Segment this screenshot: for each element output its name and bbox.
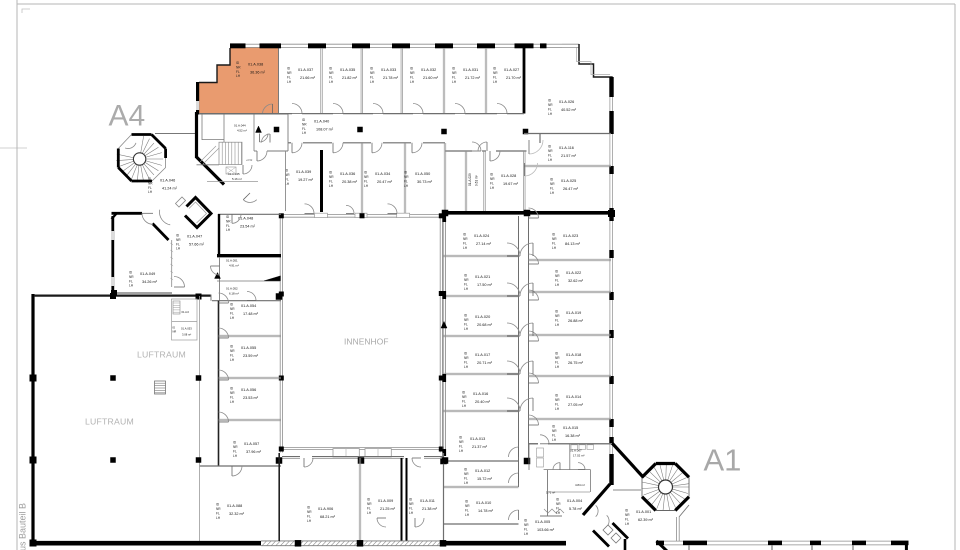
svg-text:FL: FL <box>302 127 306 131</box>
svg-text:LH: LH <box>367 511 372 515</box>
svg-text:NR: NR <box>364 175 369 179</box>
svg-text:LH: LH <box>555 283 560 287</box>
svg-text:21.72 m²: 21.72 m² <box>465 76 481 80</box>
svg-text:01.A.025: 01.A.025 <box>561 179 576 183</box>
svg-text:01.A.009: 01.A.009 <box>378 499 393 503</box>
svg-text:21.82 m²: 21.82 m² <box>342 76 358 80</box>
svg-text:LH: LH <box>556 511 561 515</box>
svg-text:20.38 m²: 20.38 m² <box>342 180 358 184</box>
svg-text:01.A.001: 01.A.001 <box>636 510 651 514</box>
svg-text:NR: NR <box>329 71 334 75</box>
svg-text:NR: NR <box>524 523 529 527</box>
svg-text:103.66 m²: 103.66 m² <box>537 528 555 532</box>
svg-text:FL: FL <box>236 70 240 74</box>
svg-text:FL: FL <box>555 360 559 364</box>
svg-text:LUFTRAUM: LUFTRAUM <box>137 350 186 360</box>
svg-text:FL: FL <box>464 360 468 364</box>
svg-text:01.A.057: 01.A.057 <box>244 442 259 446</box>
svg-text:FL: FL <box>233 449 237 453</box>
svg-text:40.52 m²: 40.52 m² <box>561 108 577 112</box>
svg-text:01.A.012: 01.A.012 <box>475 469 490 473</box>
svg-text:14.78 m²: 14.78 m² <box>478 509 494 513</box>
svg-text:17.50 m²: 17.50 m² <box>477 283 493 287</box>
svg-text:20.47 m²: 20.47 m² <box>377 180 393 184</box>
svg-text:NR: NR <box>367 502 372 506</box>
svg-text:INNENHOF: INNENHOF <box>344 337 389 347</box>
svg-text:01.A.020: 01.A.020 <box>475 315 490 319</box>
svg-text:LH: LH <box>230 400 235 404</box>
svg-text:NR: NR <box>307 510 312 514</box>
svg-text:FL: FL <box>552 433 556 437</box>
svg-text:4.91 m²: 4.91 m² <box>229 264 239 268</box>
svg-text:NR: NR <box>236 65 241 69</box>
svg-text:01.A.067: 01.A.067 <box>570 449 582 453</box>
svg-text:NR: NR <box>464 278 469 282</box>
svg-text:NR: NR <box>548 149 553 153</box>
svg-text:FL: FL <box>555 402 559 406</box>
svg-text:NR: NR <box>459 440 464 444</box>
svg-text:16.38 m²: 16.38 m² <box>565 434 581 438</box>
svg-text:NR: NR <box>230 391 235 395</box>
svg-text:01.A.050: 01.A.050 <box>415 172 430 176</box>
svg-text:20.71 m²: 20.71 m² <box>477 361 493 365</box>
svg-text:LH: LH <box>552 438 557 442</box>
svg-text:NR: NR <box>410 71 415 75</box>
svg-text:21.70 m²: 21.70 m² <box>506 76 522 80</box>
svg-text:37.96 m²: 37.96 m² <box>246 450 262 454</box>
svg-text:15.72 m²: 15.72 m² <box>477 477 493 481</box>
svg-text:LH: LH <box>493 80 498 84</box>
svg-text:LH: LH <box>464 327 469 331</box>
svg-text:NR: NR <box>230 349 235 353</box>
svg-text:LH: LH <box>236 74 241 78</box>
svg-text:01.A.021: 01.A.021 <box>475 275 490 279</box>
svg-text:FL: FL <box>452 75 456 79</box>
svg-text:21.57 m²: 21.57 m² <box>561 154 577 158</box>
svg-text:LH: LH <box>548 112 553 116</box>
svg-text:4.84 m²: 4.84 m² <box>575 483 585 487</box>
svg-text:5.71 m²: 5.71 m² <box>546 491 555 495</box>
svg-text:23.53 m²: 23.53 m² <box>243 396 259 400</box>
svg-text:ID: ID <box>173 326 176 330</box>
svg-text:01.A.004: 01.A.004 <box>567 499 582 503</box>
svg-text:aus Bauteil B: aus Bauteil B <box>18 503 28 550</box>
svg-text:01.A.029: 01.A.029 <box>468 173 472 186</box>
svg-text:01.A.906: 01.A.906 <box>318 507 333 511</box>
svg-text:01.A.055: 01.A.055 <box>241 346 256 350</box>
svg-text:01.A.005: 01.A.005 <box>535 520 550 524</box>
svg-text:FL: FL <box>230 395 234 399</box>
svg-text:01.A.036: 01.A.036 <box>340 172 355 176</box>
svg-text:LH: LH <box>552 246 557 250</box>
svg-text:LH: LH <box>463 246 468 250</box>
svg-text:FL: FL <box>524 527 528 531</box>
svg-text:NR: NR <box>216 507 221 511</box>
svg-text:LH: LH <box>216 516 221 520</box>
svg-text:01.A.054: 01.A.054 <box>241 304 256 308</box>
svg-text:LH: LH <box>452 80 457 84</box>
svg-text:FL: FL <box>462 399 466 403</box>
svg-text:NR: NR <box>230 307 235 311</box>
svg-text:FL: FL <box>230 353 234 357</box>
svg-text:A4: A4 <box>109 100 146 133</box>
svg-text:NR: NR <box>465 504 470 508</box>
svg-text:LH: LH <box>464 365 469 369</box>
svg-text:LH: LH <box>226 228 231 232</box>
svg-text:NR: NR <box>493 71 498 75</box>
svg-text:32.62 m²: 32.62 m² <box>568 279 584 283</box>
svg-text:LH: LH <box>370 80 375 84</box>
svg-text:LH: LH <box>524 532 529 536</box>
svg-text:FL: FL <box>463 241 467 245</box>
svg-text:NR: NR <box>173 330 177 334</box>
svg-text:01.A.028: 01.A.028 <box>501 174 516 178</box>
svg-text:NR: NR <box>550 182 555 186</box>
svg-text:01.A.024: 01.A.024 <box>474 234 489 238</box>
svg-text:23.54 m²: 23.54 m² <box>240 225 256 229</box>
svg-text:NR: NR <box>555 314 560 318</box>
svg-text:FL: FL <box>176 242 180 246</box>
svg-text:NR: NR <box>548 103 553 107</box>
svg-text:LH: LH <box>462 404 467 408</box>
svg-text:01.A.013: 01.A.013 <box>470 437 485 441</box>
svg-text:NR: NR <box>404 175 409 179</box>
svg-text:LH: LH <box>550 191 555 195</box>
svg-text:LH: LH <box>490 186 495 190</box>
svg-text:108.07 m²: 108.07 m² <box>316 128 334 132</box>
svg-text:21.25 m²: 21.25 m² <box>380 507 396 511</box>
svg-text:NR: NR <box>625 513 630 517</box>
svg-text:NR: NR <box>129 275 134 279</box>
svg-text:LH: LH <box>302 131 307 135</box>
svg-text:FL: FL <box>216 511 220 515</box>
svg-text:84.13 m²: 84.13 m² <box>565 242 581 246</box>
svg-text:NR: NR <box>464 356 469 360</box>
svg-text:01.A.039: 01.A.039 <box>296 170 311 174</box>
svg-text:LH: LH <box>307 519 312 523</box>
svg-text:FL: FL <box>404 179 408 183</box>
svg-text:LH: LH <box>287 80 292 84</box>
svg-text:NR: NR <box>329 175 334 179</box>
svg-text:01.A.010: 01.A.010 <box>476 501 491 505</box>
svg-text:A1: A1 <box>704 443 742 478</box>
svg-text:NR: NR <box>148 181 153 185</box>
svg-text:LH: LH <box>555 407 560 411</box>
svg-text:01.A.088: 01.A.088 <box>227 504 242 508</box>
svg-text:NR: NR <box>556 502 561 506</box>
svg-text:NR: NR <box>555 274 560 278</box>
svg-text:21.66 m²: 21.66 m² <box>300 76 316 80</box>
svg-text:FL: FL <box>307 514 311 518</box>
svg-text:FL: FL <box>548 153 552 157</box>
svg-text:LH: LH <box>464 287 469 291</box>
svg-text:34.26 m²: 34.26 m² <box>142 280 158 284</box>
svg-text:NR: NR <box>409 502 414 506</box>
svg-text:19.27 m²: 19.27 m² <box>298 178 314 182</box>
svg-text:FL: FL <box>459 444 463 448</box>
svg-text:LH: LH <box>625 522 630 526</box>
svg-text:01.A.033: 01.A.033 <box>381 68 396 72</box>
svg-text:FL: FL <box>464 322 468 326</box>
svg-text:01.A.0: 01.A.0 <box>182 310 190 314</box>
svg-text:LH: LH <box>555 365 560 369</box>
svg-text:30.73 m²: 30.73 m² <box>417 180 433 184</box>
svg-text:FL: FL <box>129 279 133 283</box>
svg-text:NR: NR <box>287 71 292 75</box>
svg-text:NR: NR <box>552 237 557 241</box>
svg-text:FL: FL <box>490 181 494 185</box>
svg-text:01.A.038: 01.A.038 <box>248 63 263 67</box>
svg-text:21.38 m²: 21.38 m² <box>422 507 438 511</box>
svg-text:FL: FL <box>230 311 234 315</box>
svg-text:LH: LH <box>410 80 415 84</box>
svg-text:21.60 m²: 21.60 m² <box>423 76 439 80</box>
svg-text:LH: LH <box>176 247 181 251</box>
svg-text:FL: FL <box>329 179 333 183</box>
svg-text:NR: NR <box>555 398 560 402</box>
svg-text:01.A.056: 01.A.056 <box>241 388 256 392</box>
svg-text:21.37 m²: 21.37 m² <box>472 445 488 449</box>
svg-text:NR: NR <box>370 71 375 75</box>
svg-text:FL: FL <box>148 186 152 190</box>
svg-text:01.A.047: 01.A.047 <box>187 235 202 239</box>
svg-text:01.A.032: 01.A.032 <box>421 68 436 72</box>
svg-text:LH: LH <box>459 449 464 453</box>
svg-text:FL: FL <box>464 476 468 480</box>
svg-text:FL: FL <box>226 224 230 228</box>
svg-text:01.A.049: 01.A.049 <box>140 272 155 276</box>
svg-text:FL: FL <box>465 508 469 512</box>
svg-text:17.48 m²: 17.48 m² <box>243 312 259 316</box>
svg-text:01.A.026: 01.A.026 <box>559 100 574 104</box>
svg-text:01.A.053: 01.A.053 <box>181 327 192 331</box>
svg-text:NR: NR <box>462 395 467 399</box>
svg-text:LH: LH <box>548 158 553 162</box>
svg-text:LH: LH <box>230 316 235 320</box>
svg-text:LH: LH <box>404 184 409 188</box>
svg-text:21.78 m²: 21.78 m² <box>383 76 399 80</box>
svg-text:LH: LH <box>329 80 334 84</box>
svg-text:LH: LH <box>129 284 134 288</box>
svg-text:01.A.016: 01.A.016 <box>473 392 488 396</box>
svg-text:6.18 m²: 6.18 m² <box>229 292 239 296</box>
svg-text:FL: FL <box>287 75 291 79</box>
svg-text:27.14 m²: 27.14 m² <box>476 242 492 246</box>
svg-text:LUFTRAUM: LUFTRAUM <box>85 417 134 427</box>
svg-text:01.A.044: 01.A.044 <box>234 124 246 128</box>
svg-text:LH: LH <box>148 190 153 194</box>
svg-text:LH: LH <box>233 454 238 458</box>
svg-text:20.68 m²: 20.68 m² <box>477 323 493 327</box>
svg-text:NR: NR <box>464 318 469 322</box>
svg-text:26.47 m²: 26.47 m² <box>563 187 579 191</box>
svg-text:01.A.040: 01.A.040 <box>314 120 329 124</box>
svg-text:NR: NR <box>226 219 231 223</box>
svg-text:NR: NR <box>233 445 238 449</box>
svg-text:LH: LH <box>409 511 414 515</box>
svg-text:01.A.046: 01.A.046 <box>160 179 175 183</box>
svg-text:FL: FL <box>493 75 497 79</box>
svg-text:NR: NR <box>463 237 468 241</box>
svg-text:FL: FL <box>329 75 333 79</box>
svg-text:01.A.051: 01.A.051 <box>226 259 238 263</box>
svg-text:5.16 m²: 5.16 m² <box>232 177 242 181</box>
svg-text:01.A.052: 01.A.052 <box>226 287 238 291</box>
svg-text:LH: LH <box>555 323 560 327</box>
svg-text:17.02 m²: 17.02 m² <box>573 454 584 458</box>
svg-text:32.32 m²: 32.32 m² <box>229 512 245 516</box>
svg-text:LH: LH <box>329 184 334 188</box>
svg-text:3.08 m²: 3.08 m² <box>182 333 191 337</box>
svg-text:01.A.034: 01.A.034 <box>375 172 390 176</box>
svg-text:01.A.023: 01.A.023 <box>563 234 578 238</box>
svg-text:FL: FL <box>555 318 559 322</box>
svg-text:01.A.017: 01.A.017 <box>475 353 490 357</box>
svg-text:26.88 m²: 26.88 m² <box>568 319 584 323</box>
svg-text:FL: FL <box>464 282 468 286</box>
svg-text:01.A.116: 01.A.116 <box>559 146 574 150</box>
svg-text:FL: FL <box>550 186 554 190</box>
svg-text:NR: NR <box>464 472 469 476</box>
svg-text:LH: LH <box>364 184 369 188</box>
svg-text:NR: NR <box>490 177 495 181</box>
svg-text:01.A.027: 01.A.027 <box>504 68 519 72</box>
svg-text:NR: NR <box>452 71 457 75</box>
svg-text:01.A.019: 01.A.019 <box>566 311 581 315</box>
svg-text:9.61 m²: 9.61 m² <box>475 175 479 186</box>
svg-text:01.A.018: 01.A.018 <box>566 353 581 357</box>
svg-text:NR: NR <box>302 122 307 126</box>
svg-text:01.A.037: 01.A.037 <box>298 68 313 72</box>
svg-text:19.67 m²: 19.67 m² <box>503 182 519 186</box>
svg-text:FL: FL <box>552 241 556 245</box>
svg-text:5.78 m²: 5.78 m² <box>569 507 583 511</box>
svg-text:LH: LH <box>464 481 469 485</box>
svg-text:FL: FL <box>364 179 368 183</box>
svg-text:01.A.014: 01.A.014 <box>566 395 581 399</box>
svg-text:FL: FL <box>367 506 371 510</box>
svg-text:62.39 m²: 62.39 m² <box>638 518 654 522</box>
svg-text:01.A.035: 01.A.035 <box>340 68 355 72</box>
svg-text:FL: FL <box>409 506 413 510</box>
svg-text:FL: FL <box>625 517 629 521</box>
svg-text:41.24 m²: 41.24 m² <box>162 187 178 191</box>
svg-text:20.40 m²: 20.40 m² <box>475 400 491 404</box>
svg-text:FL: FL <box>410 75 414 79</box>
svg-text:+0.52: +0.52 <box>246 159 253 162</box>
svg-text:01.A.022: 01.A.022 <box>566 271 581 275</box>
svg-text:68.21 m²: 68.21 m² <box>320 515 336 519</box>
svg-text:23.59 m²: 23.59 m² <box>243 354 259 358</box>
svg-text:01.A.015: 01.A.015 <box>563 426 578 430</box>
svg-text:NR: NR <box>555 356 560 360</box>
svg-text:FL: FL <box>370 75 374 79</box>
svg-text:4.52 m²: 4.52 m² <box>237 129 247 133</box>
svg-text:01.A.011: 01.A.011 <box>420 499 435 503</box>
svg-text:NR: NR <box>176 238 181 242</box>
svg-text:FL: FL <box>555 278 559 282</box>
svg-text:57.66 m²: 57.66 m² <box>189 243 205 247</box>
svg-text:LH: LH <box>230 358 235 362</box>
svg-text:FL: FL <box>548 107 552 111</box>
svg-text:NR: NR <box>552 429 557 433</box>
svg-text:26.75 m²: 26.75 m² <box>568 361 584 365</box>
svg-text:FL: FL <box>556 506 560 510</box>
svg-text:01.A.031: 01.A.031 <box>463 68 478 72</box>
svg-text:27.05 m²: 27.05 m² <box>568 403 584 407</box>
svg-text:36.36 m²: 36.36 m² <box>250 71 266 75</box>
svg-text:LH: LH <box>465 513 470 517</box>
